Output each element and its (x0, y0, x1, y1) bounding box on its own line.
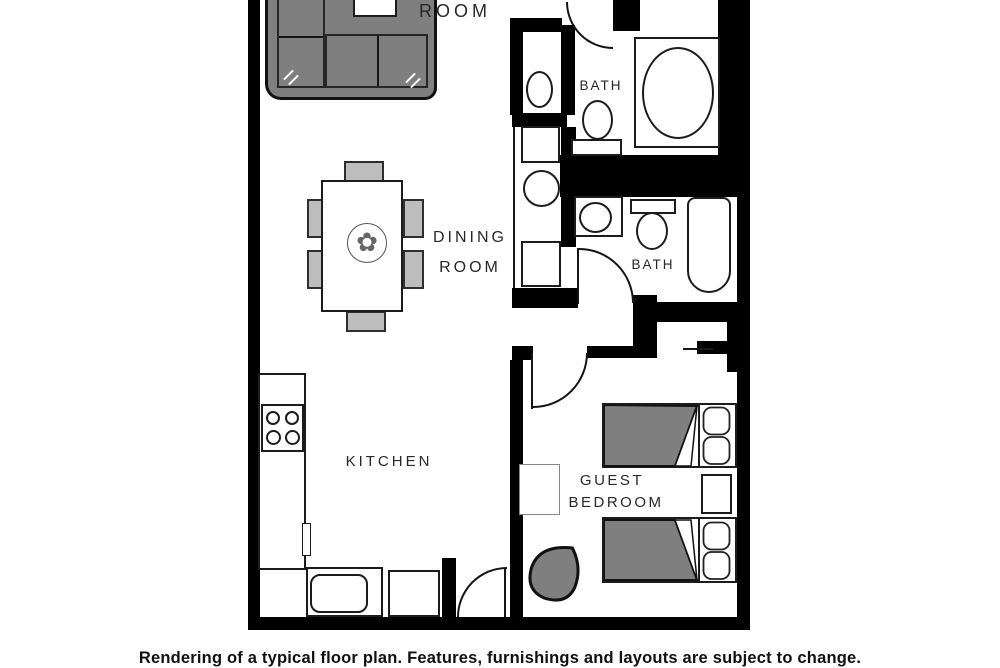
disclaimer-caption: Rendering of a typical floor plan. Featu… (139, 649, 861, 668)
wall-entry-stub (442, 558, 456, 617)
floor-plan: ROOM ✿ DINING ROOM KITCHEN BATH BATH (0, 0, 1000, 666)
stove (261, 404, 304, 452)
bathtub (687, 197, 731, 293)
wall-toilet-niche-top (514, 18, 562, 32)
bed-blanket (604, 405, 699, 467)
table-centerpiece-icon: ✿ (347, 223, 387, 263)
closet-door-line (683, 348, 713, 350)
dining-chair (346, 311, 386, 332)
wall-closet-right (727, 302, 739, 372)
stove-burner (266, 411, 280, 425)
pillows-icon (702, 406, 732, 466)
bathroom-sink (579, 202, 612, 233)
wall-laundry-top (512, 113, 567, 127)
stove-burner (266, 430, 281, 445)
guest-bedroom-label-line2: BEDROOM (568, 495, 663, 512)
wall-bedroom-top-left (512, 346, 533, 360)
bathroom-sink (582, 100, 613, 140)
kitchen-counter-left (258, 373, 306, 570)
dining-chair (344, 161, 384, 182)
stove-burner (285, 411, 299, 425)
dining-chair (403, 199, 424, 238)
wall-center-upper (510, 18, 523, 115)
wall-bottom (248, 617, 750, 630)
kitchen-sink (310, 574, 368, 613)
bath-top-label: BATH (579, 79, 622, 94)
wall-closet-top (657, 302, 737, 322)
bathtub (642, 47, 714, 139)
guest-bedroom-label-line1: GUEST (580, 473, 644, 490)
sink-pedestal (571, 139, 622, 156)
kitchen-label: KITCHEN (346, 454, 433, 471)
dryer-drum (523, 170, 560, 207)
sofa-cushion-divider (377, 36, 379, 86)
toilet (636, 212, 668, 250)
dining-chair (403, 250, 424, 289)
wall-bath2-door-right (633, 295, 657, 353)
dryer (521, 241, 561, 287)
bath-middle-door-arc (579, 248, 634, 303)
accent-chair (524, 542, 584, 605)
wall-bath-top-stub (613, 0, 640, 31)
wall-between-baths (560, 155, 738, 197)
bed-blanket (604, 519, 699, 581)
counter-handle (302, 523, 311, 556)
washer (521, 126, 560, 163)
wall-bath-top-right (718, 0, 738, 160)
dining-room-label-line2: ROOM (439, 259, 501, 277)
nightstand (701, 474, 732, 514)
dining-room-label-line1: DINING (433, 229, 507, 247)
wall-laundry-bottom (512, 288, 578, 308)
bath-middle-label: BATH (631, 258, 674, 273)
sofa-cushion-divider (279, 36, 323, 38)
stove-burner (285, 430, 300, 445)
dishwasher (388, 570, 440, 617)
toilet (526, 71, 553, 108)
dresser (519, 464, 560, 515)
laundry-front-line (513, 127, 515, 288)
entry-door-arc (457, 567, 507, 617)
bedroom-door-arc (533, 353, 588, 408)
wall-toilet-niche-right (561, 25, 575, 115)
living-room-label: ROOM (419, 2, 491, 22)
side-table (353, 0, 397, 17)
pillows-icon (702, 521, 732, 581)
sofa-cushion-left (277, 0, 325, 88)
wall-bedroom-top-mid (587, 346, 657, 358)
